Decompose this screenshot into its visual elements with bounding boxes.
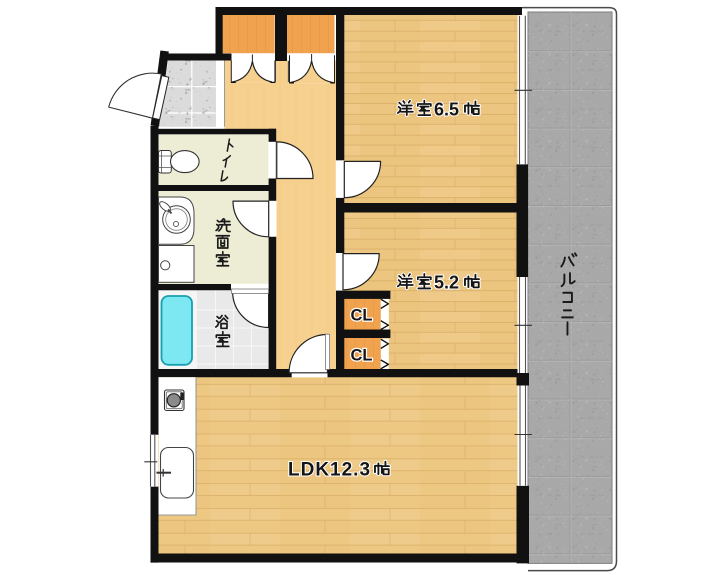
svg-text:6.5: 6.5 bbox=[434, 99, 459, 119]
svg-text:LDK12.3: LDK12.3 bbox=[288, 459, 371, 480]
svg-text:CL: CL bbox=[351, 307, 373, 325]
svg-text:5.2: 5.2 bbox=[434, 273, 459, 293]
svg-text:CL: CL bbox=[351, 346, 373, 364]
